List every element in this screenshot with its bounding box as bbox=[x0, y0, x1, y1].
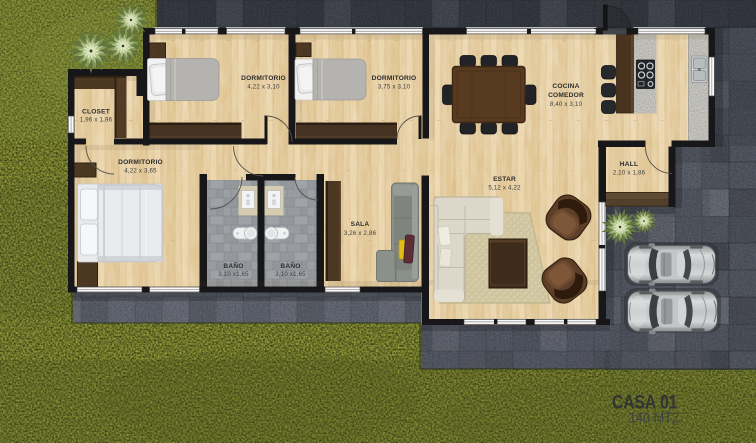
svg-text:3,75 x 3,10: 3,75 x 3,10 bbox=[378, 84, 411, 91]
svg-text:CLOSET: CLOSET bbox=[82, 109, 110, 116]
svg-text:BAÑO: BAÑO bbox=[223, 261, 243, 270]
svg-text:8,40 x 3,10: 8,40 x 3,10 bbox=[550, 101, 583, 108]
svg-text:1,96 x 1,96: 1,96 x 1,96 bbox=[80, 117, 113, 124]
svg-text:5,12 x 4,22: 5,12 x 4,22 bbox=[488, 185, 521, 192]
svg-text:BAÑO: BAÑO bbox=[280, 261, 300, 270]
svg-text:DORMITORIO: DORMITORIO bbox=[118, 159, 163, 166]
svg-text:4,22 x 3,65: 4,22 x 3,65 bbox=[124, 168, 157, 175]
svg-text:COMEDOR: COMEDOR bbox=[548, 92, 584, 99]
svg-text:3,10 x1,65: 3,10 x1,65 bbox=[218, 271, 249, 278]
svg-text:3,10 x1,65: 3,10 x1,65 bbox=[275, 271, 306, 278]
svg-text:2,10 x 1,86: 2,10 x 1,86 bbox=[613, 170, 646, 177]
svg-text:140 MT2: 140 MT2 bbox=[629, 410, 679, 427]
svg-text:SALA: SALA bbox=[351, 221, 370, 228]
svg-text:HALL: HALL bbox=[620, 161, 638, 168]
svg-text:4,22 x 3,10: 4,22 x 3,10 bbox=[247, 84, 280, 91]
svg-text:COCINA: COCINA bbox=[552, 83, 579, 90]
svg-text:DORMITORIO: DORMITORIO bbox=[372, 75, 417, 82]
svg-text:DORMITORIO: DORMITORIO bbox=[241, 75, 286, 82]
svg-text:3,26 x 2,86: 3,26 x 2,86 bbox=[344, 230, 377, 237]
svg-text:ESTAR: ESTAR bbox=[493, 176, 516, 183]
